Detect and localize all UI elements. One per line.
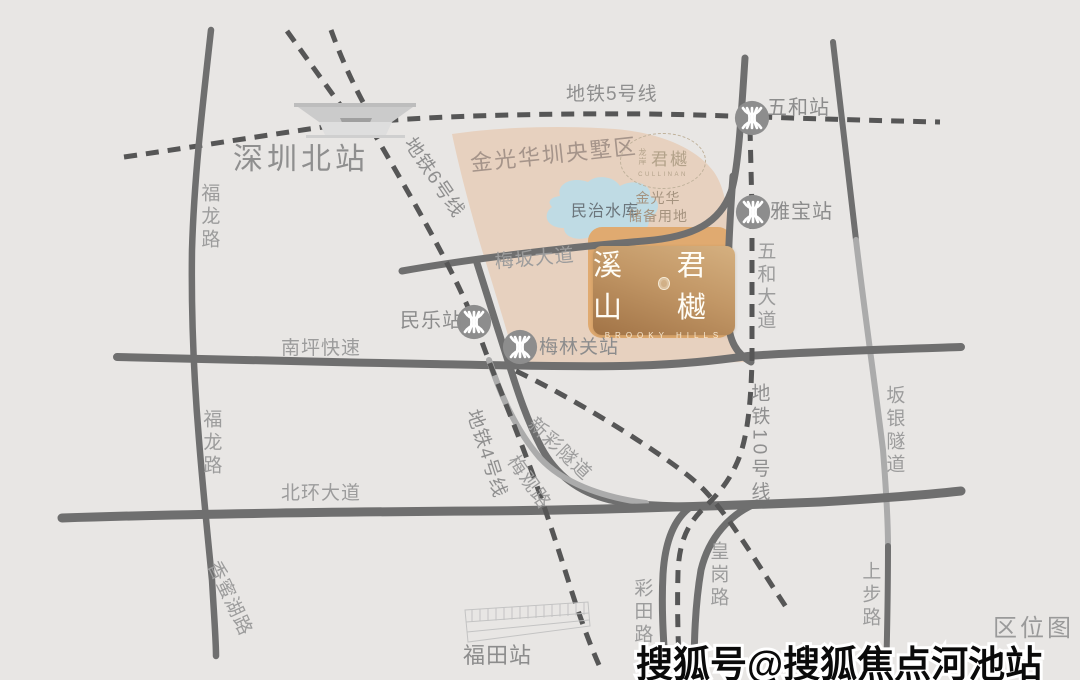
station-label-minle: 民乐站 [400,310,463,334]
futian-station-building-icon [465,602,590,642]
station-label-meilinguan: 梅林关站 [539,337,619,359]
metro-station-icon-wuhe [735,101,769,135]
project-name-right: 君樾 [677,242,735,326]
road-label-wuhe-avenue: 五和大道 [753,241,775,333]
badge-name-label: 君樾 [651,145,689,170]
project-ornament-icon [658,277,669,290]
road-label-fulong-south: 福龙路 [199,409,221,478]
station-label-futian: 福田站 [463,643,532,669]
metro-station-icon-yabao [736,195,770,229]
metro-station-icon-meilinguan [503,330,537,364]
badge-prefix-label: 龙岸 [637,148,648,166]
road-banyin-north-path [833,42,856,240]
project-subtitle-label: BROOKY HILLS [605,331,724,340]
metro-line10-label: 地铁10号线 [747,383,769,504]
location-map: 金光华圳央墅区 民治水库 金光华 储备用地 龙岸 君樾 CULLINAN 溪山 … [0,0,1080,680]
metro-branch-b-path [331,30,364,104]
road-label-fulong-north: 福龙路 [197,183,219,252]
metro-branch-a-path [287,31,341,106]
road-beihuan-path [62,491,961,518]
road-label-beihuan: 北环大道 [281,483,361,505]
road-label-shangbu: 上步路 [858,561,880,630]
station-label-yabao: 雅宝站 [770,201,833,225]
project-name-left: 溪山 [593,242,651,326]
road-label-nanping: 南坪快速 [281,338,361,360]
reserve-land-label: 金光华 储备用地 [612,189,704,225]
project-logo-card: 溪山 君樾 BROOKY HILLS [593,246,735,335]
road-label-huanggang: 皇岗路 [706,541,728,610]
road-label-banyin-tunnel: 坂银隧道 [882,385,904,477]
badge-subtitle-label: CULLINAN [638,172,688,178]
metro-line5-label: 地铁5号线 [566,84,658,106]
station-label-wuhe: 五和站 [767,97,830,121]
watermark: 搜狐号@搜狐焦点河池站 [636,634,1042,680]
cullinan-badge: 龙岸 君樾 CULLINAN [620,133,706,189]
reserve-land-line1: 金光华 [636,190,681,206]
reserve-land-line2: 储备用地 [628,208,688,224]
station-label-shenzhen-north: 深圳北站 [233,142,369,177]
